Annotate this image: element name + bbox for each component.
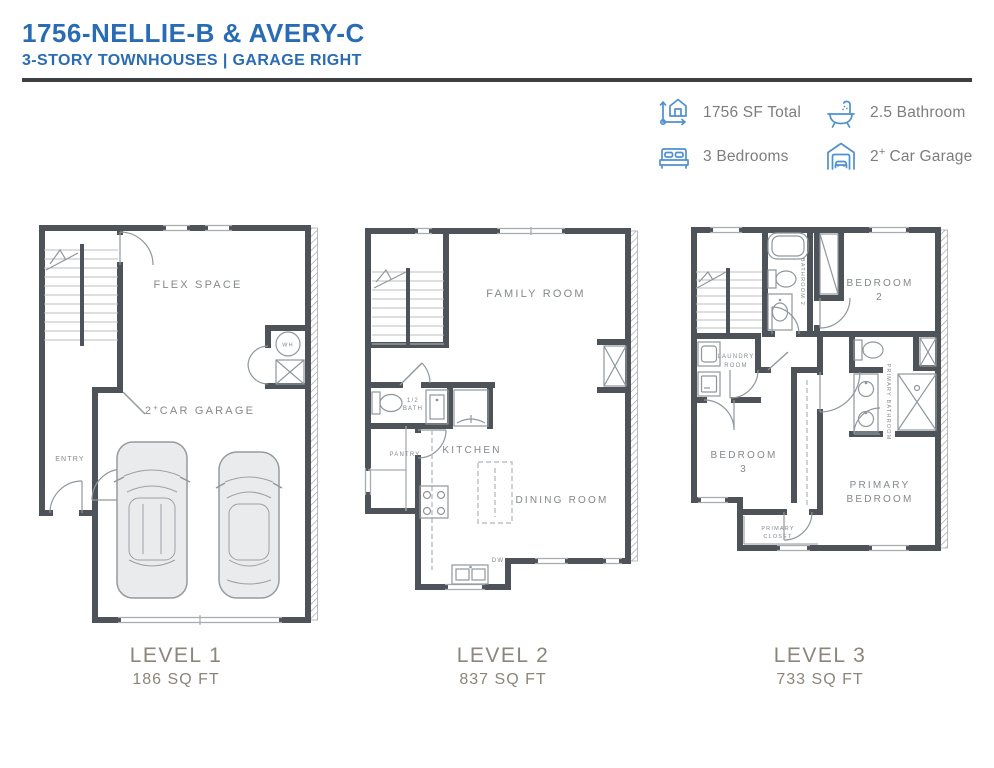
bedroom-3-label-1: BEDROOM: [710, 450, 777, 461]
kitchen-label: KITCHEN: [442, 445, 501, 456]
bedroom-2-closet: [820, 234, 838, 294]
level-2-closet: [604, 346, 626, 386]
level-2-floorplan: 1/2 BATH FAMILY ROOM KITCHEN PANTRY DINI…: [360, 224, 646, 596]
level-2-name: LEVEL 2: [360, 644, 646, 668]
dining-room-label: DINING ROOM: [515, 495, 608, 506]
level-3-floorplan: BATHROOM 2 BEDROOM 2 LAUNDRY ROOM PRIMAR…: [684, 222, 956, 556]
floorplan-sheet: { "header": { "title": "1756-NELLIE-B & …: [0, 0, 994, 768]
legend-garage-count: 2: [870, 148, 879, 165]
primary-bathroom-label: PRIMARY BATHROOM: [885, 364, 891, 441]
level-1-stairs: [44, 244, 118, 346]
laundry-label-1: LAUNDRY: [718, 354, 755, 360]
level-1-closet: [276, 360, 304, 384]
laundry-label-2: ROOM: [724, 363, 747, 369]
level-3-stairs: [696, 268, 762, 334]
garage-label: 2+CAR GARAGE: [145, 403, 255, 417]
bed-icon: [656, 139, 692, 175]
primary-bathroom-fixtures: [854, 338, 936, 432]
legend-bedrooms-label: 3 Bedrooms: [703, 148, 789, 166]
garage-label-num: 2: [145, 405, 153, 417]
laundry-appliances: [698, 342, 720, 396]
legend-garage: 2+Car Garage: [823, 139, 972, 175]
car-suv: [114, 442, 190, 598]
level-1-floorplan: WH FLEX SPACE 2+CAR GARAGE ENTRY: [30, 220, 322, 626]
bathroom-2-label: BATHROOM 2: [799, 258, 805, 306]
legend-sf-total-label: 1756 SF Total: [703, 104, 801, 122]
level-2-stairs: [372, 268, 444, 345]
level-2-area: 837 SQ FT: [360, 671, 646, 689]
family-room-label: FAMILY ROOM: [486, 288, 586, 300]
legend-bedrooms: 3 Bedrooms: [656, 139, 789, 175]
level-1-caption: LEVEL 1 186 SQ FT: [30, 644, 322, 689]
level-1-area: 186 SQ FT: [30, 671, 322, 689]
party-wall-hatch: [311, 228, 318, 620]
half-bath-label-2: BATH: [403, 406, 423, 412]
garage-label-plus: +: [153, 403, 160, 412]
legend-garage-label: 2+Car Garage: [870, 148, 972, 166]
legend-garage-text: Car Garage: [889, 148, 972, 165]
dishwasher-label: DW: [492, 558, 504, 564]
house-measure-icon: [656, 95, 692, 131]
party-wall-hatch: [941, 230, 948, 548]
legend-sf-total: 1756 SF Total: [656, 95, 801, 131]
refrigerator: [454, 390, 488, 426]
entry-label: ENTRY: [55, 456, 85, 463]
pantry-shelves: [368, 426, 406, 511]
level-1-name: LEVEL 1: [30, 644, 322, 668]
level-2-caption: LEVEL 2 837 SQ FT: [360, 644, 646, 689]
pantry-label: PANTRY: [390, 452, 421, 458]
garage-icon: [823, 139, 859, 175]
water-heater-label: WH: [282, 343, 294, 349]
primary-bedroom-label-1: PRIMARY: [850, 480, 911, 491]
primary-bedroom-label-2: BEDROOM: [846, 494, 913, 505]
party-wall-hatch: [631, 231, 638, 561]
primary-closet-label-1: PRIMARY: [761, 526, 794, 532]
half-bath-label-1: 1/2: [407, 398, 419, 404]
level-3-caption: LEVEL 3 733 SQ FT: [684, 644, 956, 689]
car-sedan: [216, 452, 282, 598]
bedroom-2-label-2: 2: [876, 292, 884, 303]
legend-bathrooms-label: 2.5 Bathroom: [870, 104, 965, 122]
page-subtitle: 3-STORY TOWNHOUSES | GARAGE RIGHT: [22, 52, 362, 70]
page-title: 1756-NELLIE-B & AVERY-C: [22, 18, 365, 49]
divider-rule: [22, 78, 972, 82]
bathtub-icon: [823, 95, 859, 131]
level-3-area: 733 SQ FT: [684, 671, 956, 689]
level-3-name: LEVEL 3: [684, 644, 956, 668]
flex-space-label: FLEX SPACE: [153, 279, 242, 291]
legend-bathrooms: 2.5 Bathroom: [823, 95, 965, 131]
primary-closet-label-2: CLOSET: [763, 534, 792, 540]
bedroom-3-label-2: 3: [740, 464, 748, 475]
legend-garage-plus: +: [879, 146, 886, 158]
bedroom-2-label-1: BEDROOM: [846, 278, 913, 289]
garage-label-text: CAR GARAGE: [160, 405, 255, 417]
